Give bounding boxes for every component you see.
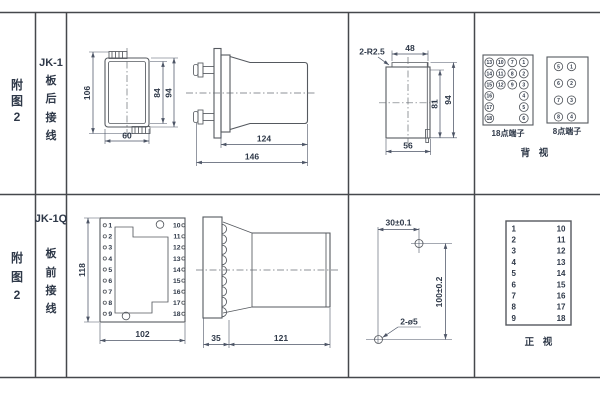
terminal-8-number: 3 (570, 98, 573, 104)
panel-terminal-number: 2 (108, 234, 112, 241)
terminal-18-number: 7 (511, 60, 514, 66)
figure-panel-cutout: 2-R2.5 48 81 94 56 (359, 43, 457, 155)
terminal-18-number: 1 (522, 60, 525, 66)
terminal-18-number: 13 (487, 60, 493, 66)
figure-rear-side: 124 146 (186, 49, 316, 167)
side-terminal-bump (222, 297, 227, 306)
front-box-number: 13 (557, 258, 566, 267)
figure-label-char: 附 (11, 250, 23, 265)
terminal-18-number: 11 (498, 71, 504, 77)
terminal-table-front: 123456789101112131415161718 正 视 (506, 221, 571, 348)
dim-121: 121 (274, 333, 288, 343)
figure-drill-plan: 30±0.1 100±0.2 2-ø5 (366, 218, 452, 344)
panel-terminal-number: 17 (173, 300, 181, 307)
panel-terminal-number: 9 (108, 311, 112, 318)
figure-rear-outline: 106 84 94 60 (82, 48, 178, 144)
terminal-18-number: 16 (487, 94, 493, 100)
terminal-18-number: 10 (498, 60, 504, 66)
dim-118: 118 (77, 263, 87, 277)
terminal-18-number: 9 (511, 83, 514, 89)
front-box-number: 15 (557, 280, 566, 289)
dim-48: 48 (405, 43, 415, 53)
technical-drawing-svg: 附 图 2 JK-1 板 后 接 线 附 图 2 JK-1Q 板 前 接 线 1… (0, 0, 600, 400)
panel-terminal-number: 18 (173, 311, 181, 318)
terminal-18-number: 2 (522, 71, 525, 77)
front-box-number: 16 (557, 291, 566, 300)
terminal-18-number: 6 (522, 116, 525, 122)
panel-terminal-dot (103, 312, 106, 315)
terminal-8-number: 5 (557, 64, 560, 70)
side-terminal-bump (222, 224, 227, 233)
figure-front-side: 35 121 (196, 217, 340, 348)
dim-60: 60 (122, 131, 132, 141)
front-box-number: 12 (557, 247, 566, 256)
figure-label-char: 附 (11, 77, 23, 92)
terminal-8-number: 6 (557, 81, 560, 87)
terminal-8-number: 8 (557, 115, 560, 121)
side-terminal-bump (222, 287, 227, 296)
model-label: JK-1Q (35, 213, 68, 225)
panel-terminal-number: 14 (173, 267, 181, 274)
terminal-8-number: 1 (570, 64, 573, 70)
label-holes: 2-ø5 (400, 317, 418, 327)
dim-56: 56 (403, 141, 413, 151)
panel-terminal-dot (103, 279, 106, 282)
dim-100: 100±0.2 (434, 276, 444, 307)
front-box-number: 9 (512, 314, 517, 323)
front-box-number: 7 (512, 291, 517, 300)
dim-35: 35 (211, 333, 221, 343)
front-box-number: 2 (512, 235, 517, 244)
terminal-8-number: 7 (557, 98, 560, 104)
panel-terminal-number: 7 (108, 289, 112, 296)
panel-terminal-dot (103, 235, 106, 238)
terminal-18-number: 15 (487, 83, 493, 89)
dim-94: 94 (164, 88, 174, 98)
front-box-number: 11 (557, 235, 566, 244)
terminal-18-number: 5 (522, 105, 525, 111)
wiring-label-char: 板 (46, 73, 58, 87)
side-terminal-bump (222, 276, 227, 285)
terminal-18-number: 12 (498, 83, 504, 89)
dim-124: 124 (257, 134, 271, 144)
model-label: JK-1 (39, 57, 63, 69)
panel-terminal-number: 3 (108, 245, 112, 252)
front-box-number: 8 (512, 303, 517, 312)
wiring-label-char: 接 (46, 110, 57, 124)
panel-terminal-number: 4 (108, 256, 112, 263)
datasheet-page: 附 图 2 JK-1 板 后 接 线 附 图 2 JK-1Q 板 前 接 线 1… (0, 0, 600, 400)
figure-label-char: 图 (11, 94, 23, 108)
panel-terminal-dot (103, 301, 106, 304)
terminal-8-label: 8点端子 (553, 126, 581, 136)
dim-81: 81 (430, 99, 440, 109)
panel-terminal-number: 11 (173, 234, 180, 241)
wiring-label-char: 接 (46, 283, 57, 297)
front-box-number: 6 (512, 280, 517, 289)
terminal-18-number: 17 (487, 105, 493, 111)
side-terminal-bump (222, 266, 227, 275)
wiring-label-char: 前 (46, 265, 57, 279)
panel-terminal-number: 13 (173, 256, 181, 263)
front-box-number: 17 (557, 303, 566, 312)
dim-106: 106 (82, 86, 92, 100)
figure-label-char: 2 (14, 110, 21, 124)
terminal-18-number: 18 (487, 116, 493, 122)
side-terminal-bump (222, 256, 227, 265)
sidebar-row2: 附 图 2 JK-1Q 板 前 接 线 (11, 213, 68, 315)
terminal-18-number: 8 (511, 71, 514, 77)
figure-label-char: 2 (14, 288, 21, 302)
wiring-label-char: 线 (46, 301, 57, 315)
front-box-number: 1 (512, 224, 517, 233)
dim-30: 30±0.1 (386, 218, 412, 228)
wiring-label-char: 线 (46, 128, 57, 142)
panel-terminal-number: 1 (108, 223, 112, 230)
panel-terminal-number: 8 (108, 300, 112, 307)
panel-terminal-number: 12 (173, 245, 181, 252)
terminal-18-number: 4 (522, 94, 525, 100)
side-terminal-bump (222, 235, 227, 244)
terminal-18-number: 14 (487, 71, 493, 77)
dim-84: 84 (152, 88, 162, 98)
sidebar-row1: 附 图 2 JK-1 板 后 接 线 (11, 57, 63, 142)
panel-terminal-dot (103, 257, 106, 260)
figure-front-panel: 123456789101112131415161718 118 102 (77, 218, 185, 344)
panel-terminal-number: 16 (173, 289, 181, 296)
panel-terminal-number: 10 (173, 223, 181, 230)
dim-94-cutout: 94 (443, 95, 453, 105)
terminal-8-number: 4 (570, 115, 573, 121)
terminal-18-label: 18点端子 (492, 128, 525, 138)
label-corner-radius: 2-R2.5 (359, 47, 385, 57)
front-box-number: 14 (557, 269, 566, 278)
figure-label-char: 图 (11, 270, 23, 284)
table-grid (0, 13, 600, 378)
panel-terminal-dot (103, 224, 106, 227)
wiring-label-char: 板 (46, 246, 58, 260)
side-terminal-bump (222, 245, 227, 254)
terminal-8-number: 2 (570, 81, 573, 87)
front-view-label: 正 视 (525, 336, 556, 348)
front-box-number: 18 (557, 314, 566, 323)
terminal-18-number: 3 (522, 83, 525, 89)
terminal-block-8: 51627384 8点端子 (547, 57, 588, 136)
panel-terminal-dot (103, 290, 106, 293)
rear-view-label: 背 视 (521, 147, 552, 159)
terminal-block-18: 131071141182151293164175186 18点端子 (483, 55, 533, 138)
front-box-number: 3 (512, 247, 517, 256)
dim-102: 102 (135, 329, 149, 339)
panel-terminal-number: 5 (108, 267, 112, 274)
front-box-number: 4 (512, 258, 517, 267)
front-box-number: 10 (557, 224, 566, 233)
panel-terminal-dot (103, 246, 106, 249)
panel-terminal-number: 6 (108, 278, 112, 285)
dim-146: 146 (245, 152, 259, 162)
wiring-label-char: 后 (46, 91, 57, 105)
front-box-number: 5 (512, 269, 517, 278)
panel-terminal-dot (103, 268, 106, 271)
panel-terminal-number: 15 (173, 278, 181, 285)
